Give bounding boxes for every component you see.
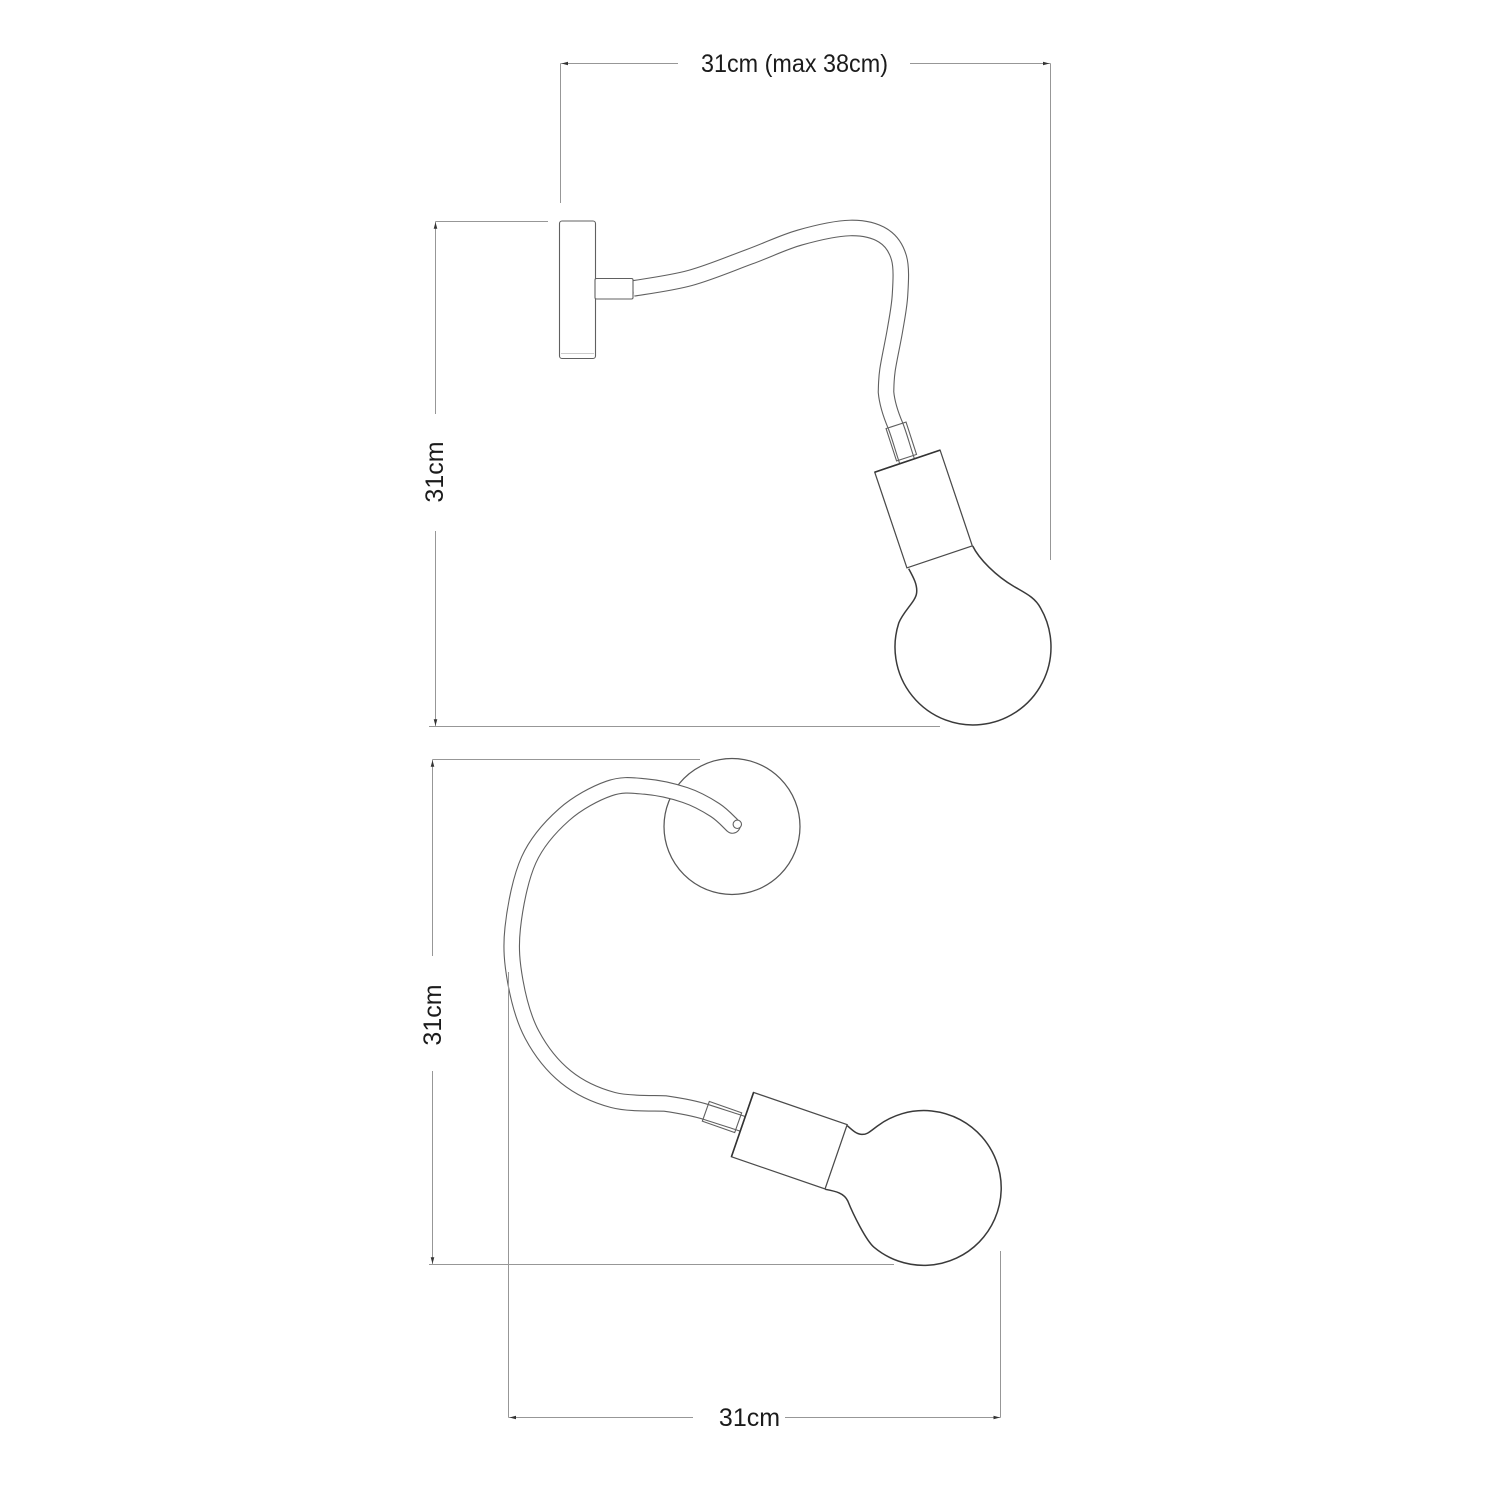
svg-text:31cm: 31cm — [421, 441, 449, 502]
svg-text:31cm (max 38cm): 31cm (max 38cm) — [701, 50, 888, 78]
svg-text:31cm: 31cm — [719, 1404, 780, 1432]
svg-text:31cm: 31cm — [419, 984, 447, 1045]
